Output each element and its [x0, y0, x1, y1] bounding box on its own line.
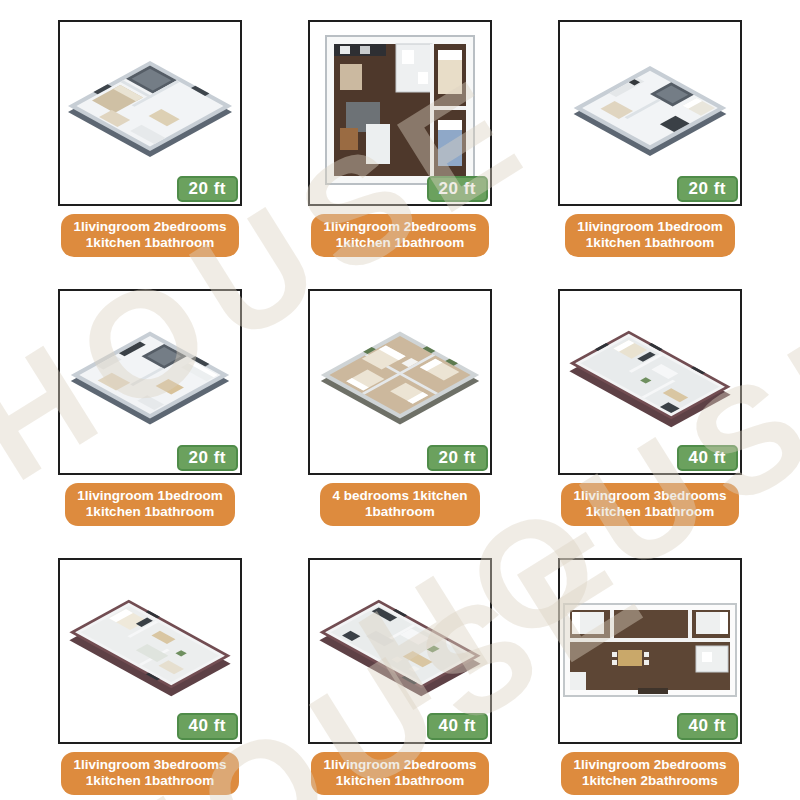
grid-row-2: 20 ft 1livingroom 1bedroom 1kitchen 1bat… — [58, 289, 800, 526]
floorplan-card-4: 20 ft — [58, 289, 242, 475]
room-caption: 1livingroom 2bedrooms 1kitchen 1bathroom — [61, 214, 238, 257]
caption-line-2: 1kitchen 2bathrooms — [573, 773, 726, 789]
product-card-3: 20 ft 1livingroom 1bedroom 1kitchen 1bat… — [558, 20, 742, 257]
size-badge: 40 ft — [427, 713, 488, 739]
caption-line-1: 1livingroom 2bedrooms — [323, 757, 476, 773]
caption-line-2: 1kitchen 1bathroom — [73, 773, 226, 789]
grid-row-3: 40 ft 1livingroom 3bedrooms 1kitchen 1ba… — [58, 558, 800, 795]
size-badge: 40 ft — [177, 713, 238, 739]
product-card-1: 20 ft 1livingroom 2bedrooms 1kitchen 1ba… — [58, 20, 242, 257]
room-caption: 1livingroom 2bedrooms 1kitchen 1bathroom — [311, 752, 488, 795]
size-badge: 40 ft — [677, 445, 738, 471]
floorplan-image-iso-long — [560, 297, 740, 467]
floorplan-card-5: 20 ft — [308, 289, 492, 475]
caption-line-2: 1kitchen 1bathroom — [77, 504, 223, 520]
room-caption: 1livingroom 2bedrooms 1kitchen 1bathroom — [311, 214, 488, 257]
caption-line-1: 1livingroom 2bedrooms — [573, 757, 726, 773]
floorplan-image-iso-long — [60, 566, 240, 736]
product-card-5: 20 ft 4 bedrooms 1kitchen 1bathroom — [308, 289, 492, 526]
caption-line-1: 1livingroom 3bedrooms — [73, 757, 226, 773]
floorplan-image-iso-square — [60, 297, 240, 467]
caption-line-1: 1livingroom 1bedroom — [77, 488, 223, 504]
caption-line-1: 4 bedrooms 1kitchen — [332, 488, 467, 504]
product-card-2: 20 ft 1livingroom 2bedrooms 1kitchen 1ba… — [308, 20, 492, 257]
room-caption: 1livingroom 1bedroom 1kitchen 1bathroom — [65, 483, 235, 526]
caption-line-2: 1kitchen 1bathroom — [573, 504, 726, 520]
product-card-6: 40 ft 1livingroom 3bedrooms 1kitchen 1ba… — [558, 289, 742, 526]
floorplan-image-iso-square — [560, 28, 740, 198]
room-caption: 1livingroom 3bedrooms 1kitchen 1bathroom — [561, 483, 738, 526]
size-badge: 40 ft — [677, 713, 738, 739]
caption-line-1: 1livingroom 3bedrooms — [573, 488, 726, 504]
room-caption: 1livingroom 3bedrooms 1kitchen 1bathroom — [61, 752, 238, 795]
grid-row-1: 20 ft 1livingroom 2bedrooms 1kitchen 1ba… — [58, 20, 800, 257]
size-badge: 20 ft — [177, 445, 238, 471]
size-badge: 20 ft — [677, 176, 738, 202]
product-card-7: 40 ft 1livingroom 3bedrooms 1kitchen 1ba… — [58, 558, 242, 795]
floorplan-card-3: 20 ft — [558, 20, 742, 206]
caption-line-2: 1kitchen 1bathroom — [577, 235, 723, 251]
size-badge: 20 ft — [427, 176, 488, 202]
floorplan-image-topdown-square — [310, 28, 490, 198]
caption-line-1: 1livingroom 2bedrooms — [73, 219, 226, 235]
floorplan-card-2: 20 ft — [308, 20, 492, 206]
floorplan-image-iso-long — [310, 566, 490, 736]
floorplan-card-9: 40 ft — [558, 558, 742, 744]
caption-line-2: 1kitchen 1bathroom — [323, 235, 476, 251]
floorplan-grid: 20 ft 1livingroom 2bedrooms 1kitchen 1ba… — [0, 0, 800, 800]
floorplan-image-iso-fourbed — [310, 297, 490, 467]
floorplan-image-iso-square — [60, 28, 240, 198]
size-badge: 20 ft — [177, 176, 238, 202]
room-caption: 4 bedrooms 1kitchen 1bathroom — [320, 483, 479, 526]
product-card-4: 20 ft 1livingroom 1bedroom 1kitchen 1bat… — [58, 289, 242, 526]
floorplan-card-6: 40 ft — [558, 289, 742, 475]
floorplan-image-topdown-long — [560, 566, 740, 736]
caption-line-2: 1bathroom — [332, 504, 467, 520]
caption-line-1: 1livingroom 1bedroom — [577, 219, 723, 235]
product-card-8: 40 ft 1livingroom 2bedrooms 1kitchen 1ba… — [308, 558, 492, 795]
caption-line-2: 1kitchen 1bathroom — [73, 235, 226, 251]
product-card-9: 40 ft 1livingroom 2bedrooms 1kitchen 2ba… — [558, 558, 742, 795]
caption-line-1: 1livingroom 2bedrooms — [323, 219, 476, 235]
floorplan-card-8: 40 ft — [308, 558, 492, 744]
room-caption: 1livingroom 2bedrooms 1kitchen 2bathroom… — [561, 752, 738, 795]
size-badge: 20 ft — [427, 445, 488, 471]
floorplan-card-1: 20 ft — [58, 20, 242, 206]
floorplan-card-7: 40 ft — [58, 558, 242, 744]
caption-line-2: 1kitchen 1bathroom — [323, 773, 476, 789]
room-caption: 1livingroom 1bedroom 1kitchen 1bathroom — [565, 214, 735, 257]
